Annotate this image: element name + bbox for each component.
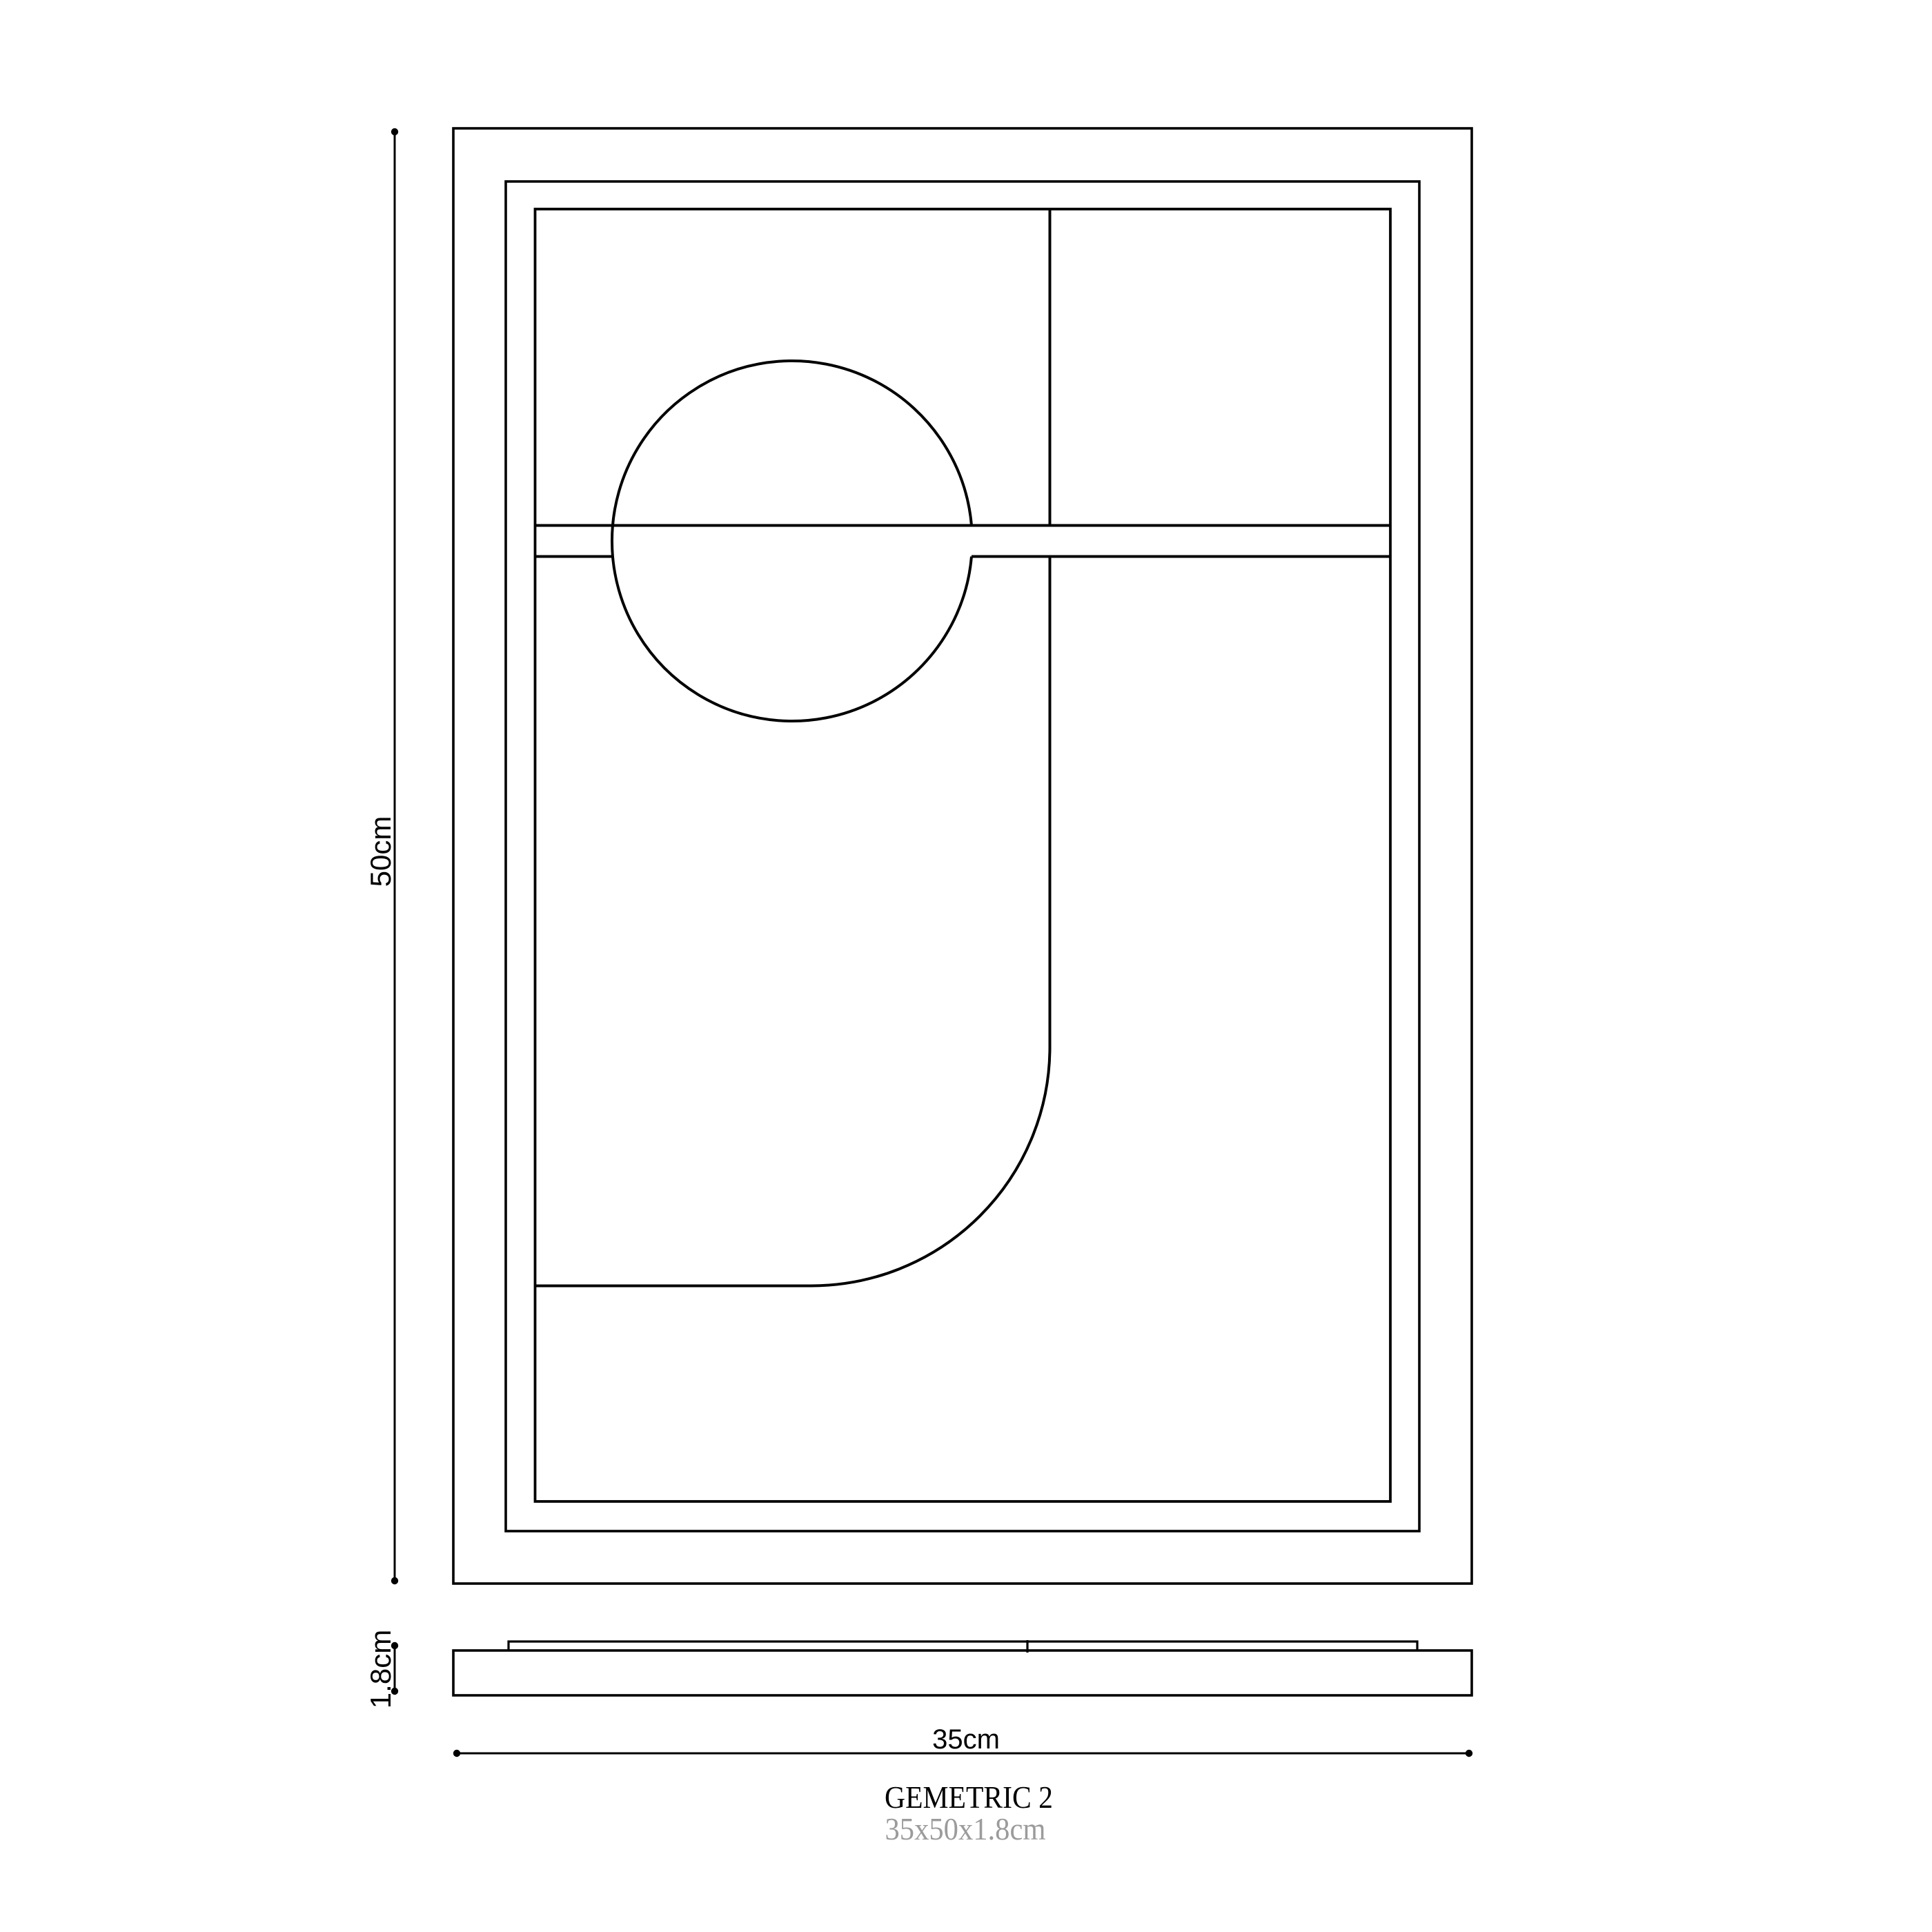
svg-text:35x50x1.8cm: 35x50x1.8cm xyxy=(885,1811,1046,1846)
svg-text:1.8cm: 1.8cm xyxy=(364,1630,397,1708)
svg-text:50cm: 50cm xyxy=(364,816,397,887)
svg-text:35cm: 35cm xyxy=(932,1724,1000,1755)
svg-text:GEMETRIC 2: GEMETRIC 2 xyxy=(885,1780,1053,1815)
